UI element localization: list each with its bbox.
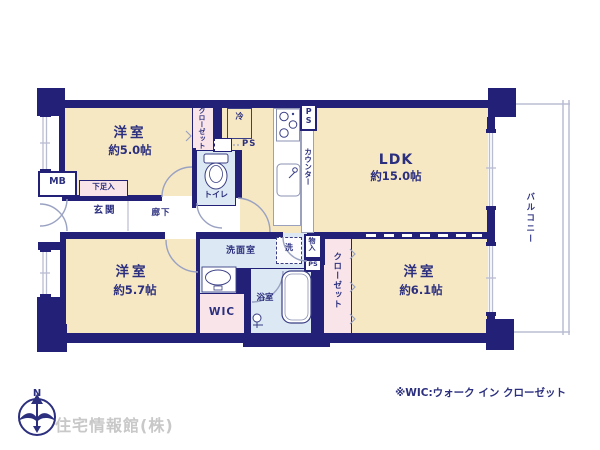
wic-label: WIC bbox=[199, 306, 245, 318]
window-right-bedroom bbox=[486, 245, 496, 313]
ldk-label: LDK bbox=[366, 152, 426, 168]
bathroom-label: 浴室 bbox=[250, 294, 280, 304]
closet-top-chevron bbox=[186, 131, 191, 141]
door-arc-bedroom-bottom-left bbox=[166, 240, 198, 272]
bedroom-bottom-right-size: 約6.1帖 bbox=[386, 284, 456, 297]
pipe-space-storage-label: PS bbox=[304, 261, 322, 268]
plan-linework bbox=[0, 0, 600, 450]
company-logo-text: 住宅情報館(株) bbox=[55, 417, 174, 435]
stove-icon bbox=[277, 109, 300, 141]
closet-bottom-chevron bbox=[350, 249, 355, 259]
compass-north-label: N bbox=[30, 388, 44, 400]
door-arc-toilet bbox=[197, 203, 222, 228]
pipe-space-kitchen-label: PS bbox=[304, 107, 313, 129]
footnote-text: ※WIC:ウォーク イン クローゼット bbox=[380, 387, 566, 399]
shoe-cabinet-label: 下足入 bbox=[79, 183, 128, 192]
corridor-label: 廊下 bbox=[142, 209, 180, 219]
balcony-railing bbox=[514, 100, 570, 335]
closet-bottom-label: クローゼット bbox=[331, 252, 341, 324]
floor-plan: 洋室 約5.0帖 LDK 約15.0帖 洋室 約5.7帖 洋室 約6.1帖 バル… bbox=[0, 0, 600, 450]
window-left-lower bbox=[40, 251, 50, 295]
bedroom-top-left-label: 洋室 bbox=[100, 126, 160, 142]
refrigerator-label: 冷 bbox=[227, 112, 252, 121]
bathtub-icon bbox=[282, 271, 311, 323]
sink-icon bbox=[277, 164, 300, 196]
door-arc-entrance-1 bbox=[40, 199, 67, 226]
door-arc-bedroom-top-left bbox=[162, 167, 192, 197]
window-cap bbox=[486, 206, 496, 210]
window-left-upper bbox=[40, 116, 50, 170]
sliding-door-dashes bbox=[366, 234, 482, 237]
window-cap bbox=[486, 242, 496, 246]
storage-label: 物入 bbox=[308, 237, 316, 257]
meter-box-label: MB bbox=[38, 177, 77, 188]
window-cap bbox=[486, 129, 496, 133]
closet-bottom-chevron bbox=[350, 282, 355, 292]
toilet-label: トイレ bbox=[198, 190, 234, 199]
ldk-size: 約15.0帖 bbox=[361, 170, 431, 183]
window-cap bbox=[40, 169, 51, 173]
bath-faucet-icon bbox=[253, 314, 263, 328]
window-cap bbox=[486, 312, 496, 316]
washroom-label: 洗面室 bbox=[210, 246, 272, 256]
bedroom-top-left-size: 約5.0帖 bbox=[95, 144, 165, 157]
washing-machine-label: 洗 bbox=[276, 243, 302, 252]
window-cap bbox=[40, 248, 51, 252]
window-cap bbox=[40, 113, 51, 117]
window-cap bbox=[40, 294, 51, 298]
entrance-label: 玄関 bbox=[85, 206, 125, 217]
bedroom-bottom-right-label: 洋室 bbox=[390, 265, 450, 281]
balcony-label: バルコニー bbox=[524, 192, 534, 256]
washbasin-icon bbox=[202, 267, 236, 292]
counter-label: カウンター bbox=[303, 148, 312, 200]
bedroom-bottom-left-size: 約5.7帖 bbox=[100, 284, 170, 297]
bedroom-bottom-left-label: 洋室 bbox=[102, 265, 162, 281]
closet-bottom-chevron bbox=[350, 314, 355, 324]
door-arc-ldk bbox=[238, 198, 270, 232]
door-arc-entrance-2 bbox=[40, 204, 67, 231]
closet-top-label: クローゼット bbox=[198, 107, 206, 150]
toilet-icon bbox=[204, 154, 228, 189]
pipe-space-fridge-label: PS bbox=[242, 140, 256, 150]
compass-icon bbox=[18, 394, 56, 435]
window-right-ldk bbox=[486, 132, 496, 208]
